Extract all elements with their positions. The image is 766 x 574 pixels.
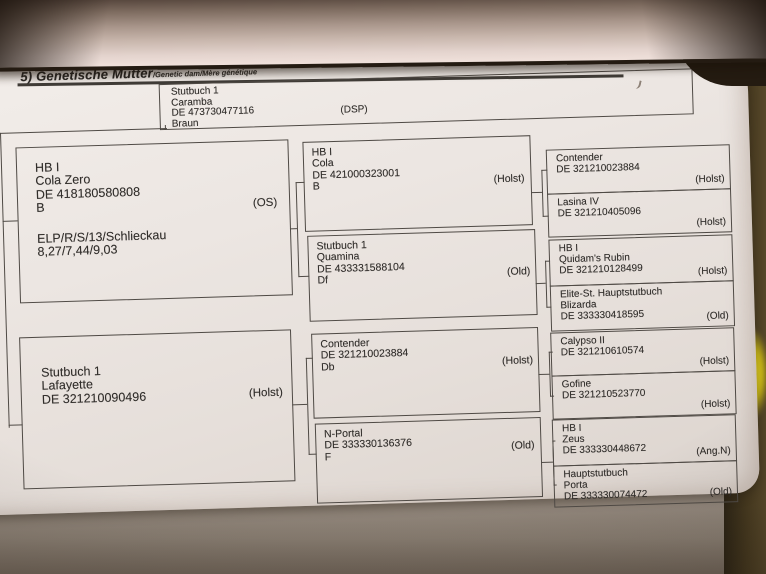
connector-line — [549, 352, 553, 354]
breed-label: (Holst) — [698, 267, 728, 279]
breed-label: (Holst) — [502, 355, 533, 367]
photo-stage: 5) Genetische Mutter/Genetic dam/Mère gé… — [0, 0, 766, 574]
breed-label: (Old) — [706, 312, 729, 323]
breed-label: (Ang.N) — [696, 447, 731, 459]
page-curl — [0, 0, 766, 72]
pedigree-box-contender: Contender DE 321210023884 Db (Holst) — [311, 327, 540, 419]
connector-line — [165, 125, 167, 130]
breed-label: (Old) — [710, 488, 733, 499]
breed-label: (Holst) — [695, 175, 725, 187]
pedigree-box-cola: HB I Cola DE 421000323001 B (Holst) — [302, 135, 533, 232]
connector-line — [536, 283, 546, 285]
pedigree-box-porta: Hauptstutbuch Porta DE 333330074472 (Old… — [553, 460, 738, 507]
pedigree-box-lasina: Lasina IV DE 321210405096 (Holst) — [547, 188, 732, 237]
pedigree-box-quidams-rubin: HB I Quidam's Rubin DE 321210128499 (Hol… — [548, 234, 733, 286]
breed-label: (Holst) — [700, 357, 730, 369]
pedigree-box-contender-sr: Contender DE 321210023884 (Holst) — [546, 144, 731, 194]
connector-line — [290, 228, 297, 230]
breed-label: (Old) — [507, 266, 531, 278]
breed-label: (Holst) — [249, 387, 283, 401]
pedigree-document: 5) Genetische Mutter/Genetic dam/Mère gé… — [0, 0, 766, 574]
pedigree-box-zeus: HB I Zeus DE 333330448672 (Ang.N) — [552, 414, 737, 466]
breed-label: (Holst) — [494, 173, 525, 185]
connector-line — [550, 396, 554, 398]
pedigree-box-calypso: Calypso II DE 321210610574 (Holst) — [550, 327, 735, 376]
breed-label: (Holst) — [701, 400, 731, 412]
breed-label: (Old) — [511, 440, 535, 452]
breed-label: (OS) — [253, 197, 278, 211]
connector-line — [545, 261, 550, 263]
pedigree-box-gofine: Gofine DE 321210523770 (Holst) — [551, 370, 736, 419]
connector-line — [309, 454, 317, 456]
breed-label: (DSP) — [340, 105, 368, 116]
pedigree-box-cola-zero: HB I Cola Zero DE 418180580808 B ELP/R/S… — [15, 139, 293, 303]
pedigree-box-quamina: Stutbuch 1 Quamina DE 433331588104 Df (O… — [307, 229, 537, 322]
connector-line — [306, 358, 313, 360]
connector-line — [543, 216, 549, 218]
pedigree-box-lafayette: Stutbuch 1 Lafayette DE 321210090496 (Ho… — [19, 329, 295, 489]
connector-line — [541, 170, 547, 172]
connector-line — [296, 182, 305, 184]
pedigree-box-n-portal: N-Portal DE 333330136376 F (Old) — [315, 417, 543, 504]
connector-line — [546, 307, 551, 309]
connector-line — [552, 441, 555, 442]
connector-line — [554, 485, 557, 486]
pedigree-box-blizarda: Elite-St. Hauptstutbuch Blizarda DE 3333… — [550, 280, 735, 331]
breed-label: (Holst) — [696, 218, 726, 230]
